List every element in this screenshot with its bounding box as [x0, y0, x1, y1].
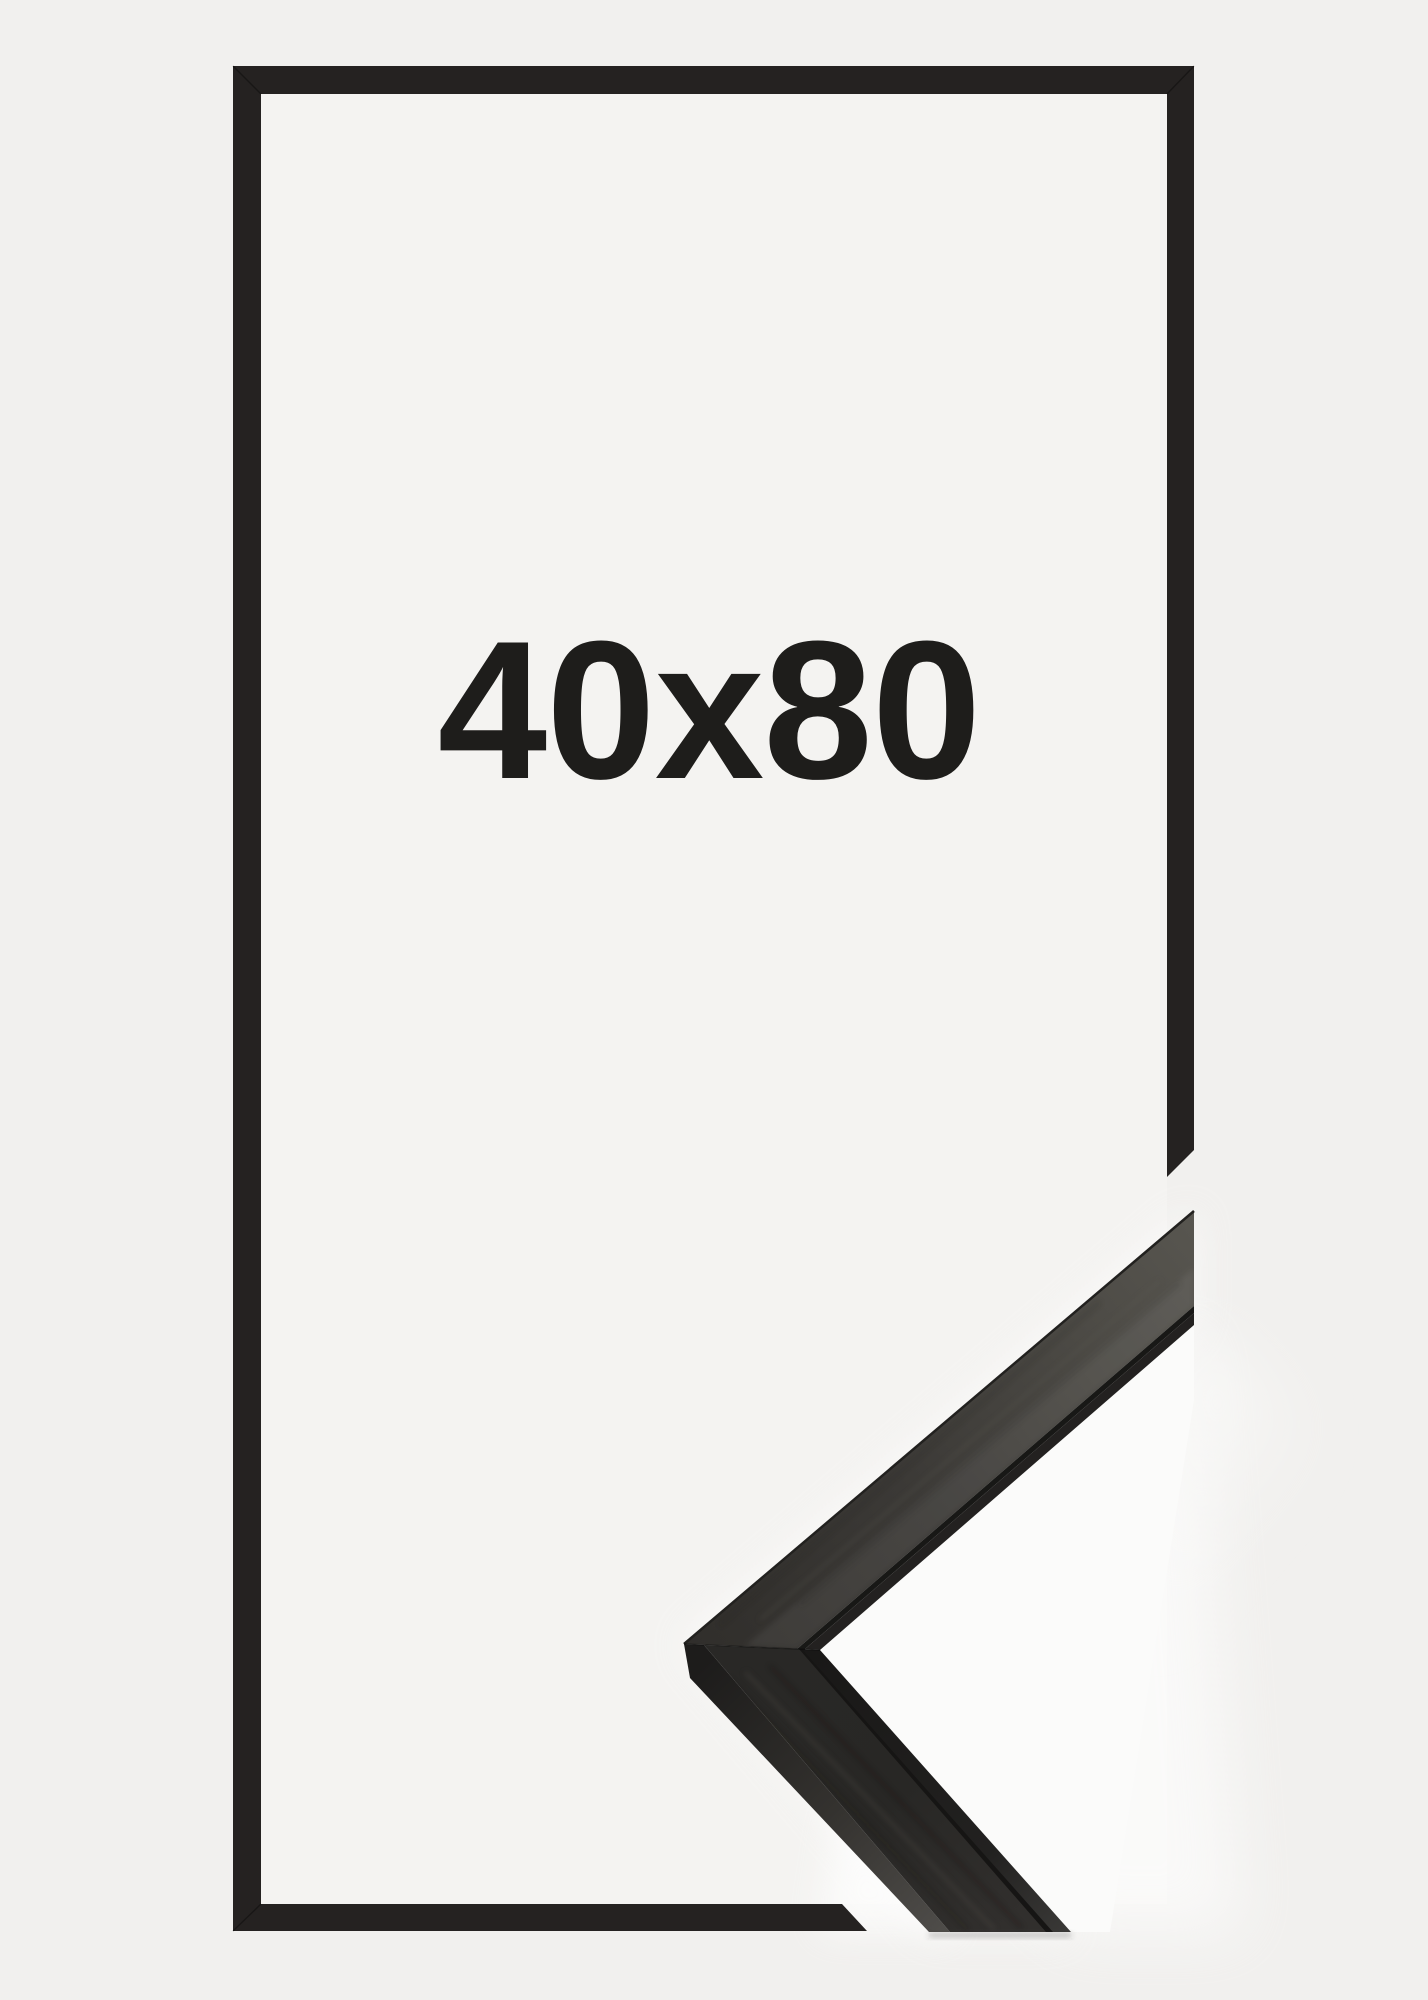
svg-text:40x80: 40x80: [438, 600, 981, 820]
